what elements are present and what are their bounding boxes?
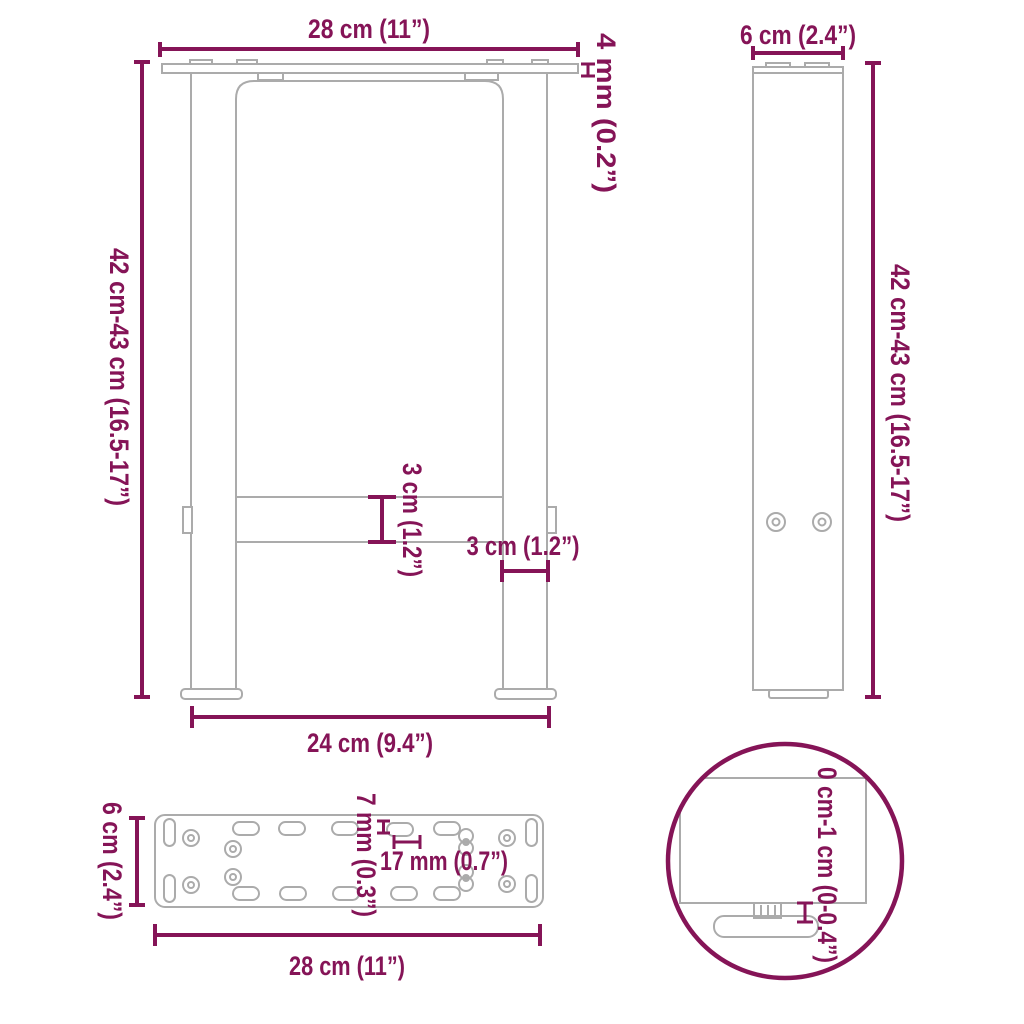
dim-label-leg-width: 3 cm (1.2”) bbox=[467, 531, 580, 561]
crossbar-tab-right bbox=[547, 507, 556, 533]
leg-frame bbox=[191, 73, 547, 690]
crossbar bbox=[236, 497, 503, 542]
side-leg-drawing bbox=[753, 63, 843, 698]
dim-side-height: 42 cm-43 cm (16.5-17”) bbox=[865, 63, 915, 697]
dim-line-side-height bbox=[865, 63, 881, 697]
detail-foot-pad bbox=[714, 916, 818, 937]
dim-label-plate-depth: 6 cm (2.4”) bbox=[97, 802, 127, 920]
dim-foot-adjustment: 0 cm-1 cm (0-0.4”) bbox=[797, 767, 842, 963]
detail-thread-lines bbox=[761, 905, 775, 916]
dim-label-foot-adjustment: 0 cm-1 cm (0-0.4”) bbox=[812, 767, 842, 963]
dim-label-slot-height: 7 mm (0.3”) bbox=[351, 793, 381, 917]
dim-bracket-crossbar-height bbox=[368, 497, 396, 542]
dim-label-plate-width: 28 cm (11”) bbox=[289, 951, 405, 981]
foot-pad-left bbox=[181, 689, 242, 699]
dim-label-crossbar-height: 3 cm (1.2”) bbox=[397, 463, 427, 577]
dim-label-plate-thickness: 4 mm (0.2”) bbox=[591, 33, 621, 193]
dim-label-side-height: 42 cm-43 cm (16.5-17”) bbox=[885, 264, 915, 522]
dimension-diagram: 28 cm (11”) 4 mm (0.2”) 42 cm-43 cm (16.… bbox=[0, 0, 1024, 1024]
dim-line-front-height bbox=[134, 62, 150, 697]
plate-top-view: 6 cm (2.4”) 7 mm (0.3”) 17 mm (0.7”) 28 … bbox=[97, 793, 543, 981]
dim-bracket-leg-width bbox=[502, 560, 548, 582]
dim-plate-depth: 6 cm (2.4”) bbox=[97, 802, 145, 920]
dim-crossbar-height: 3 cm (1.2”) bbox=[368, 463, 427, 577]
dim-feet-span: 24 cm (9.4”) bbox=[192, 706, 549, 758]
mounting-plate-front bbox=[162, 64, 578, 73]
dim-front-height: 42 cm-43 cm (16.5-17”) bbox=[104, 62, 150, 697]
dim-line-plate-width bbox=[155, 924, 540, 946]
side-leg-body bbox=[753, 67, 843, 690]
foot-adjustment-detail: 0 cm-1 cm (0-0.4”) bbox=[668, 744, 902, 978]
dim-line-top-width bbox=[160, 42, 578, 57]
foot-pad-right bbox=[495, 689, 556, 699]
dim-plate-width: 28 cm (11”) bbox=[155, 924, 540, 981]
front-view: 28 cm (11”) 4 mm (0.2”) 42 cm-43 cm (16.… bbox=[104, 14, 621, 758]
dim-side-depth: 6 cm (2.4”) bbox=[740, 20, 856, 60]
dim-label-slot-length: 17 mm (0.7”) bbox=[380, 846, 508, 876]
crossbar-tab-left bbox=[183, 507, 192, 533]
dim-label-front-height: 42 cm-43 cm (16.5-17”) bbox=[104, 248, 134, 506]
dim-line-plate-depth bbox=[129, 818, 145, 905]
dim-plate-thickness: 4 mm (0.2”) bbox=[581, 33, 621, 193]
dim-line-feet-span bbox=[192, 706, 549, 728]
dim-top-width: 28 cm (11”) bbox=[160, 14, 578, 57]
diagram-canvas: 28 cm (11”) 4 mm (0.2”) 42 cm-43 cm (16.… bbox=[0, 0, 1024, 1024]
front-leg-drawing bbox=[162, 60, 578, 699]
dim-leg-width: 3 cm (1.2”) bbox=[467, 531, 580, 582]
dim-label-feet-span: 24 cm (9.4”) bbox=[307, 728, 433, 758]
dim-label-side-depth: 6 cm (2.4”) bbox=[740, 20, 856, 50]
side-foot-pad bbox=[769, 690, 828, 698]
dim-label-top-width: 28 cm (11”) bbox=[308, 14, 430, 44]
side-view: 6 cm (2.4”) 42 cm-43 cm (16.5-17”) bbox=[740, 20, 915, 698]
dim-bracket-foot-adjustment bbox=[797, 903, 813, 922]
plate-under-tabs bbox=[258, 73, 498, 80]
